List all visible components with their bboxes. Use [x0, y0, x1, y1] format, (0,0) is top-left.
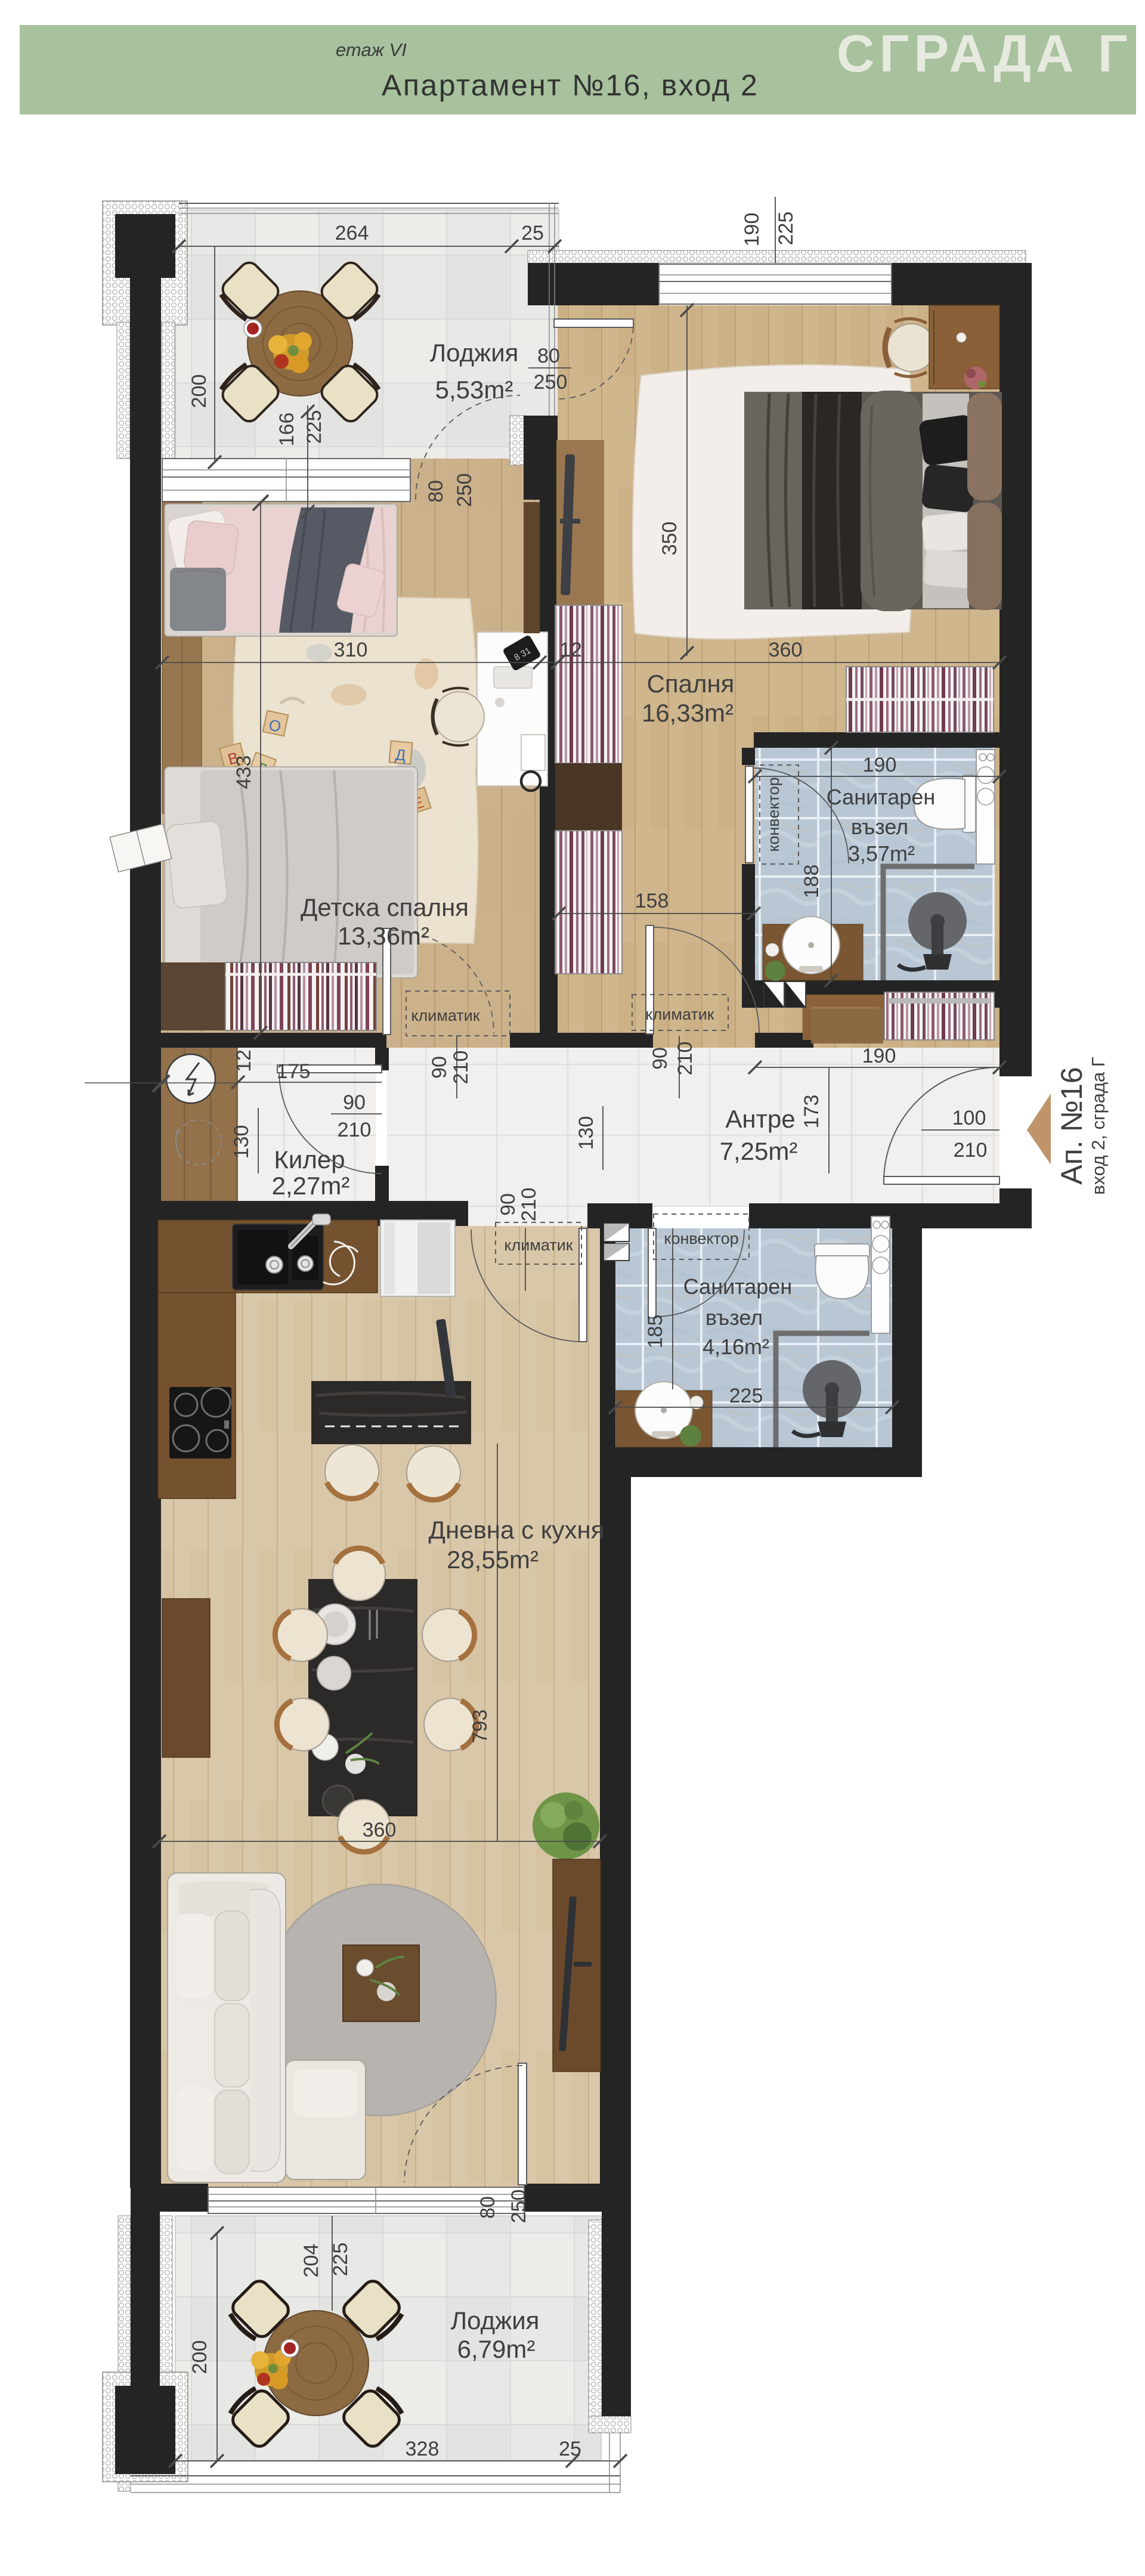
svg-text:190: 190: [741, 213, 763, 247]
svg-text:200: 200: [188, 374, 211, 408]
svg-text:158: 158: [635, 890, 669, 912]
svg-text:210: 210: [338, 1119, 372, 1141]
svg-text:225: 225: [775, 212, 797, 246]
svg-text:250: 250: [507, 2190, 530, 2224]
svg-text:188: 188: [800, 865, 823, 899]
svg-text:конвектор: конвектор: [765, 777, 782, 852]
svg-text:25: 25: [559, 2438, 581, 2460]
svg-text:350: 350: [658, 522, 681, 556]
svg-text:310: 310: [334, 639, 368, 661]
svg-text:12: 12: [233, 1049, 255, 1072]
svg-text:7,25m²: 7,25m²: [720, 1137, 798, 1165]
svg-text:204: 204: [300, 2244, 323, 2278]
svg-text:210: 210: [518, 1188, 540, 1222]
svg-text:28,55m²: 28,55m²: [447, 1546, 539, 1574]
svg-text:13,36m²: 13,36m²: [338, 922, 429, 950]
svg-text:4,16m²: 4,16m²: [703, 1335, 769, 1359]
svg-text:173: 173: [800, 1095, 823, 1129]
svg-text:433: 433: [233, 756, 255, 789]
svg-text:130: 130: [230, 1125, 253, 1159]
svg-text:СГРАДА Г: СГРАДА Г: [837, 24, 1132, 83]
svg-text:Лоджия: Лоджия: [430, 339, 519, 367]
svg-text:80: 80: [537, 345, 560, 367]
svg-text:225: 225: [303, 410, 326, 444]
svg-text:250: 250: [534, 371, 568, 394]
svg-text:климатик: климатик: [645, 1005, 714, 1023]
svg-text:възел: възел: [851, 815, 908, 839]
svg-text:175: 175: [277, 1060, 311, 1083]
svg-text:Д: Д: [395, 745, 407, 764]
svg-text:12: 12: [559, 639, 582, 661]
svg-text:2,27m²: 2,27m²: [272, 1172, 350, 1200]
svg-text:264: 264: [335, 222, 369, 244]
svg-text:225: 225: [729, 1385, 763, 1407]
svg-text:Санитарен: Санитарен: [827, 785, 935, 809]
svg-text:Антре: Антре: [725, 1105, 795, 1133]
svg-text:210: 210: [674, 1042, 697, 1076]
svg-text:250: 250: [453, 473, 476, 507]
svg-text:Спалня: Спалня: [647, 670, 735, 698]
svg-text:166: 166: [276, 413, 298, 447]
svg-text:100: 100: [952, 1107, 986, 1129]
svg-text:25: 25: [521, 222, 544, 244]
svg-text:210: 210: [954, 1139, 988, 1162]
svg-text:80: 80: [476, 2196, 499, 2219]
svg-text:5,53m²: 5,53m²: [435, 376, 513, 404]
svg-text:200: 200: [188, 2340, 211, 2374]
svg-text:793: 793: [469, 1710, 491, 1744]
svg-text:80: 80: [425, 480, 447, 503]
svg-text:Апартамент №16, вход 2: Апартамент №16, вход 2: [382, 69, 759, 102]
svg-text:конвектор: конвектор: [664, 1230, 738, 1247]
svg-text:190: 190: [863, 754, 897, 776]
svg-text:190: 190: [862, 1045, 896, 1067]
svg-text:328: 328: [406, 2438, 440, 2460]
svg-text:климатик: климатик: [411, 1007, 479, 1024]
svg-text:360: 360: [363, 1819, 397, 1841]
svg-text:360: 360: [769, 639, 803, 661]
svg-text:Санитарен: Санитарен: [683, 1274, 792, 1299]
svg-text:Ап. №16: Ап. №16: [1055, 1067, 1088, 1184]
svg-text:90: 90: [343, 1091, 366, 1114]
svg-text:Лоджия: Лоджия: [451, 2306, 540, 2334]
svg-text:Килер: Килер: [274, 1145, 345, 1174]
svg-text:Детска спалня: Детска спалня: [301, 893, 469, 921]
svg-text:130: 130: [575, 1116, 598, 1150]
svg-text:90: 90: [497, 1193, 519, 1216]
svg-text:етаж VI: етаж VI: [336, 39, 407, 60]
svg-text:16,33m²: 16,33m²: [642, 699, 734, 727]
svg-text:3,57m²: 3,57m²: [848, 841, 915, 866]
svg-text:Дневна с кухня: Дневна с кухня: [429, 1516, 605, 1544]
svg-text:90: 90: [649, 1047, 671, 1070]
svg-text:225: 225: [329, 2243, 352, 2277]
svg-text:210: 210: [450, 1051, 472, 1085]
svg-text:6,79m²: 6,79m²: [457, 2335, 536, 2363]
svg-text:вход 2, сграда Г: вход 2, сграда Г: [1088, 1057, 1109, 1195]
svg-text:90: 90: [428, 1056, 451, 1079]
svg-text:климатик: климатик: [504, 1236, 572, 1254]
svg-text:възел: възел: [705, 1305, 763, 1330]
svg-text:185: 185: [644, 1315, 667, 1349]
